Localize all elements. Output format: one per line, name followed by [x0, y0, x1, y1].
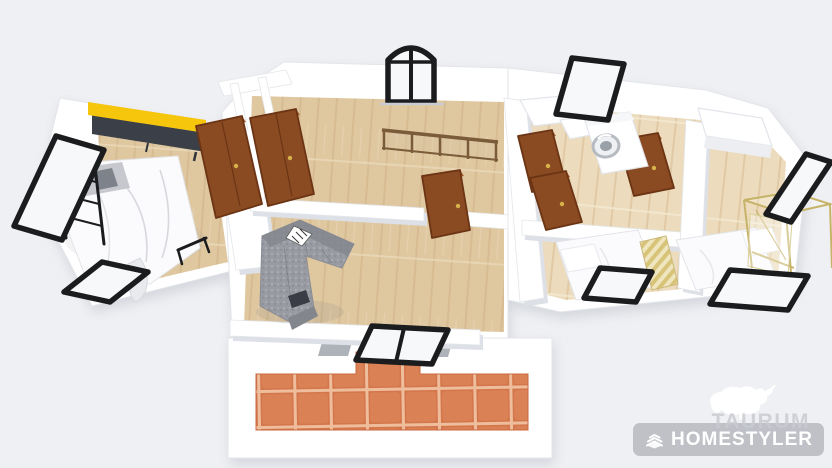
- balcony-glass-door: [356, 326, 448, 364]
- watermark: TAURUM HOMESTYLER: [648, 382, 826, 460]
- window-bottom-right-1: [584, 268, 652, 302]
- brand-taurum: TAURUM: [712, 410, 810, 434]
- window-bottom-right-2: [710, 270, 808, 310]
- layers-icon: [644, 430, 664, 450]
- floorplan-3d-canvas[interactable]: TAURUM HOMESTYLER: [0, 0, 832, 468]
- arched-window-top: [380, 48, 444, 104]
